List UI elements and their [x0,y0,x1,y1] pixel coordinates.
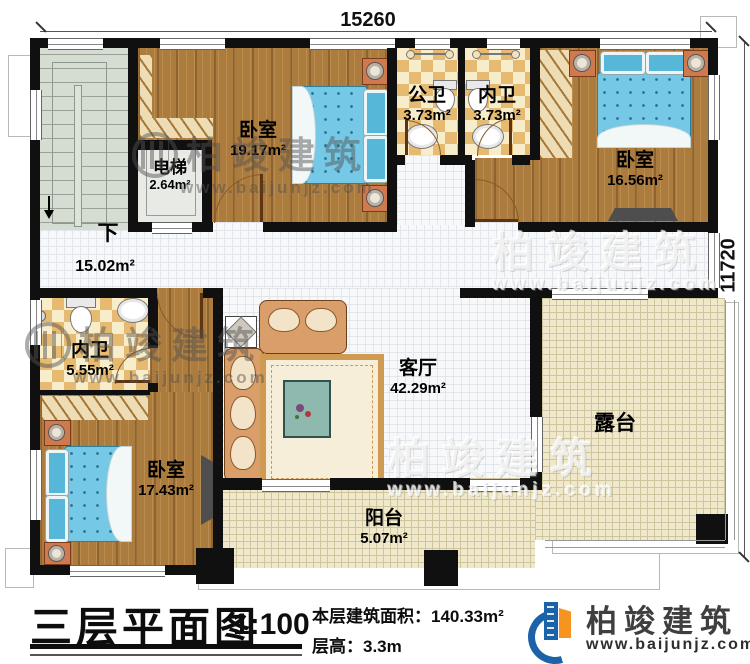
elevator-label: 电梯 2.64m² [140,158,200,192]
balcony-pillar [424,550,458,586]
balcony-pillar [196,548,234,584]
wall-elevator-top [128,140,202,150]
ensuite-top-label: 内卫 3.73m² [462,85,532,124]
terrace-window [552,288,648,300]
sofa-cushion [230,396,256,430]
room-area: 2.64m² [140,178,200,193]
room-area: 17.43m² [106,482,226,499]
bed2-lamp [573,54,591,72]
room-name: 内卫 [52,340,128,362]
room-area: 3.73m² [392,107,462,124]
room-name: 电梯 [140,158,200,178]
room-area: 5.55m² [52,362,128,379]
room-area: 15.02m² [45,258,165,276]
hall-floor-branch [397,155,465,225]
dimension-top: 15260 [308,9,428,32]
hall-area-label: 15.02m² [45,258,165,276]
dimension-line-right [744,42,745,558]
window [487,38,520,50]
bedroom2-tv-console [608,208,678,221]
wall-hall-south-left [30,288,157,298]
bed2-lamp [687,54,705,72]
room-area: 42.29m² [358,380,478,397]
brand-name: 柏竣建筑 [586,596,738,641]
brand-logo: 柏竣建筑 www.baijunjz.com [528,596,742,658]
room-area: 16.56m² [575,172,695,189]
bedroom2-label: 卧室 16.56m² [575,150,695,189]
room-name: 内卫 [462,85,532,107]
dimension-line-top [40,31,712,32]
bed3-pillow [46,496,68,542]
wall-corridor [465,160,475,227]
terrace-parapet-bottom [545,540,725,548]
bed3-lamp [48,545,65,562]
bedroom1-closet [140,55,152,118]
bed2-pillow [601,52,645,74]
bed1-lamp [366,62,384,80]
public-bath-door-leaf [405,120,408,155]
room-name: 卧室 [198,120,318,142]
balcony-slider [470,479,520,492]
wall-hall-south-right [460,288,552,298]
coffee-table [283,380,331,438]
balcony-label: 阳台 5.07m² [324,508,444,547]
bedroom2-door-leaf [475,219,518,222]
wall-ensuite-left-bottom [30,390,150,395]
room-name: 露台 [565,412,665,436]
dimension-right: 11720 [718,226,741,306]
window [415,38,450,50]
room-name: 客厅 [358,358,478,380]
bedroom2-closet [540,50,572,158]
floor-plan-canvas: 卧室 19.17m² 电梯 2.64m² 公卫 3.73m² 内卫 3.73m²… [0,0,750,664]
window [30,450,42,520]
room-area: 3.73m² [462,107,532,124]
window [600,38,690,50]
bed3-pillow [46,450,68,496]
plan-scale: 1:100 [233,608,310,642]
wall-bedroom2-bottom [518,222,708,232]
bed1-lamp [366,189,384,207]
terrace-parapet [725,300,735,540]
brand-logo-icon [528,598,580,654]
logo-building-blue [544,602,558,640]
stairs-down-label: 下 [90,222,126,246]
table-flowers [296,404,304,412]
wall-hall-south-end [648,288,718,298]
room-name: 公卫 [392,85,462,107]
logo-building-orange [559,608,571,638]
title-underline-thin [30,654,302,656]
sofa-cushion [230,436,256,470]
bed1-pillow [364,136,388,182]
floor-area-info: 本层建筑面积：140.33m² [312,602,504,627]
towel-bar [412,53,448,55]
wall-baths-bottom [512,155,530,165]
wall-baths-bottom [387,155,405,165]
corner-side-table [225,316,257,348]
ensuite-left-door-leaf [115,380,150,383]
elevator-door [152,222,192,234]
living-room-label: 客厅 42.29m² [358,358,478,397]
wall-living-bottom [330,478,470,490]
window [708,75,720,140]
sofa-cushion [230,356,256,390]
window [310,38,395,50]
ensuite-left-sink [117,298,149,323]
bed3-lamp [48,424,65,441]
window [48,38,103,50]
sofa-cushion [268,308,300,332]
public-bath-label: 公卫 3.73m² [392,85,462,124]
bedroom1-door-leaf [260,174,263,222]
bed1-pillow [364,90,388,136]
towel-bar [478,53,514,55]
window [30,90,42,140]
window [160,38,225,50]
wall-living-bottom [520,478,542,490]
bedroom3-label: 卧室 17.43m² [106,460,226,499]
stair-rail [74,85,82,227]
wall-bedroom1-right [387,48,397,232]
bedroom3-closet [42,396,148,420]
bedroom1-label: 卧室 19.17m² [198,120,318,159]
room-name: 阳台 [324,508,444,530]
window [30,300,42,345]
terrace-slider [531,417,543,472]
room-area: 5.07m² [324,530,444,547]
balcony-slider [262,479,330,492]
wall-living-terrace [530,298,542,417]
bed2-sheet [597,124,691,148]
floor-height-info: 层高：3.3m [312,632,402,657]
wall-bedroom1-bottom [263,222,387,232]
stair-arrow-head [44,210,54,224]
wall-bedroom3-right [213,288,223,565]
window [70,565,165,577]
title-underline-thick [30,644,302,649]
stair-direction-arrow [48,196,50,210]
ensuite-left-label: 内卫 5.55m² [52,340,128,379]
room-area: 19.17m² [198,142,318,159]
sofa-cushion [305,308,337,332]
wall-ensuite-left-right [148,298,158,348]
bedroom3-door-leaf [200,293,203,338]
room-name: 卧室 [106,460,226,482]
terrace-label: 露台 [565,412,665,436]
brand-website: www.baijunjz.com [586,636,750,654]
room-name: 卧室 [575,150,695,172]
